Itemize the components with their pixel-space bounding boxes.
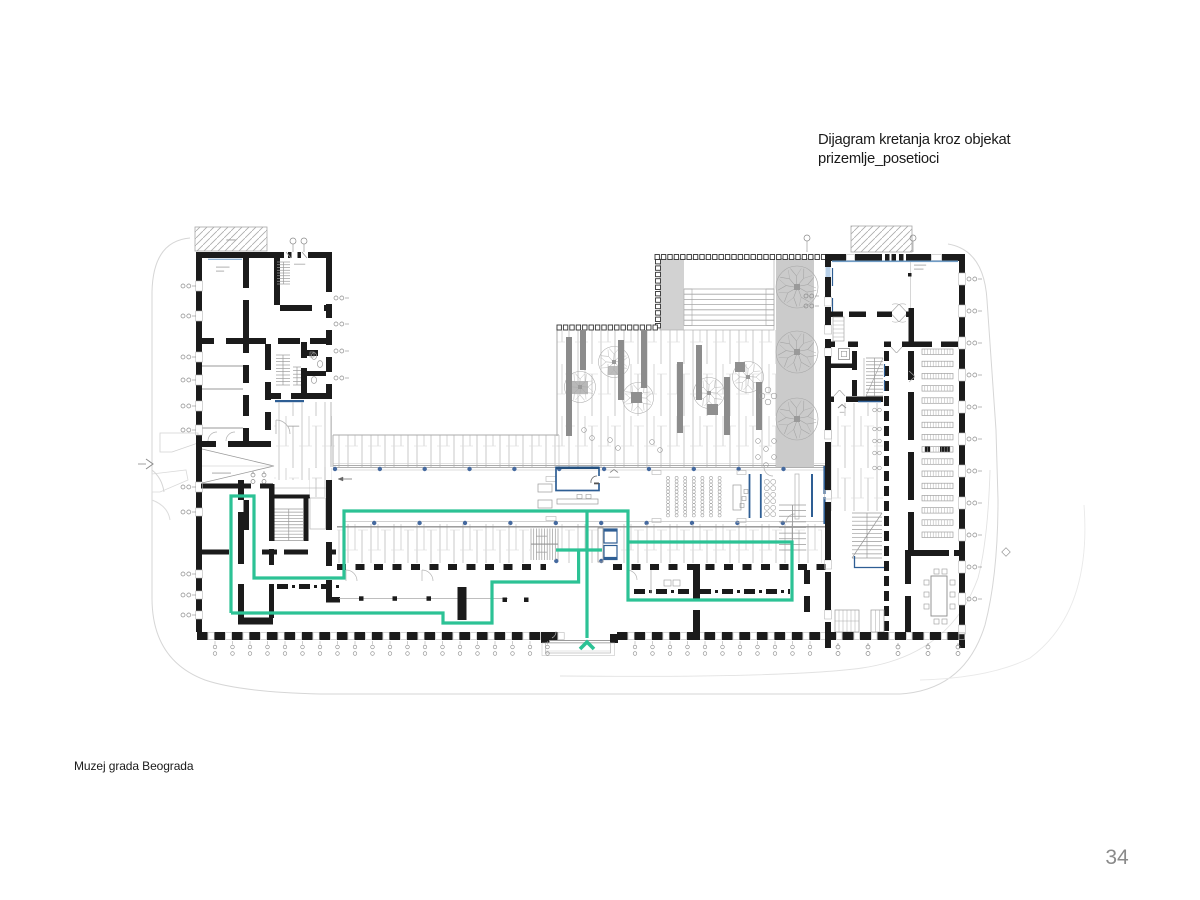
svg-text:Dijagram kretanja kroz objekat: Dijagram kretanja kroz objekat: [818, 132, 1010, 148]
svg-text:prizemlje_posetioci: prizemlje_posetioci: [818, 151, 939, 167]
svg-text:34: 34: [1105, 846, 1129, 869]
svg-text:Muzej grada Beograda: Muzej grada Beograda: [74, 759, 194, 773]
